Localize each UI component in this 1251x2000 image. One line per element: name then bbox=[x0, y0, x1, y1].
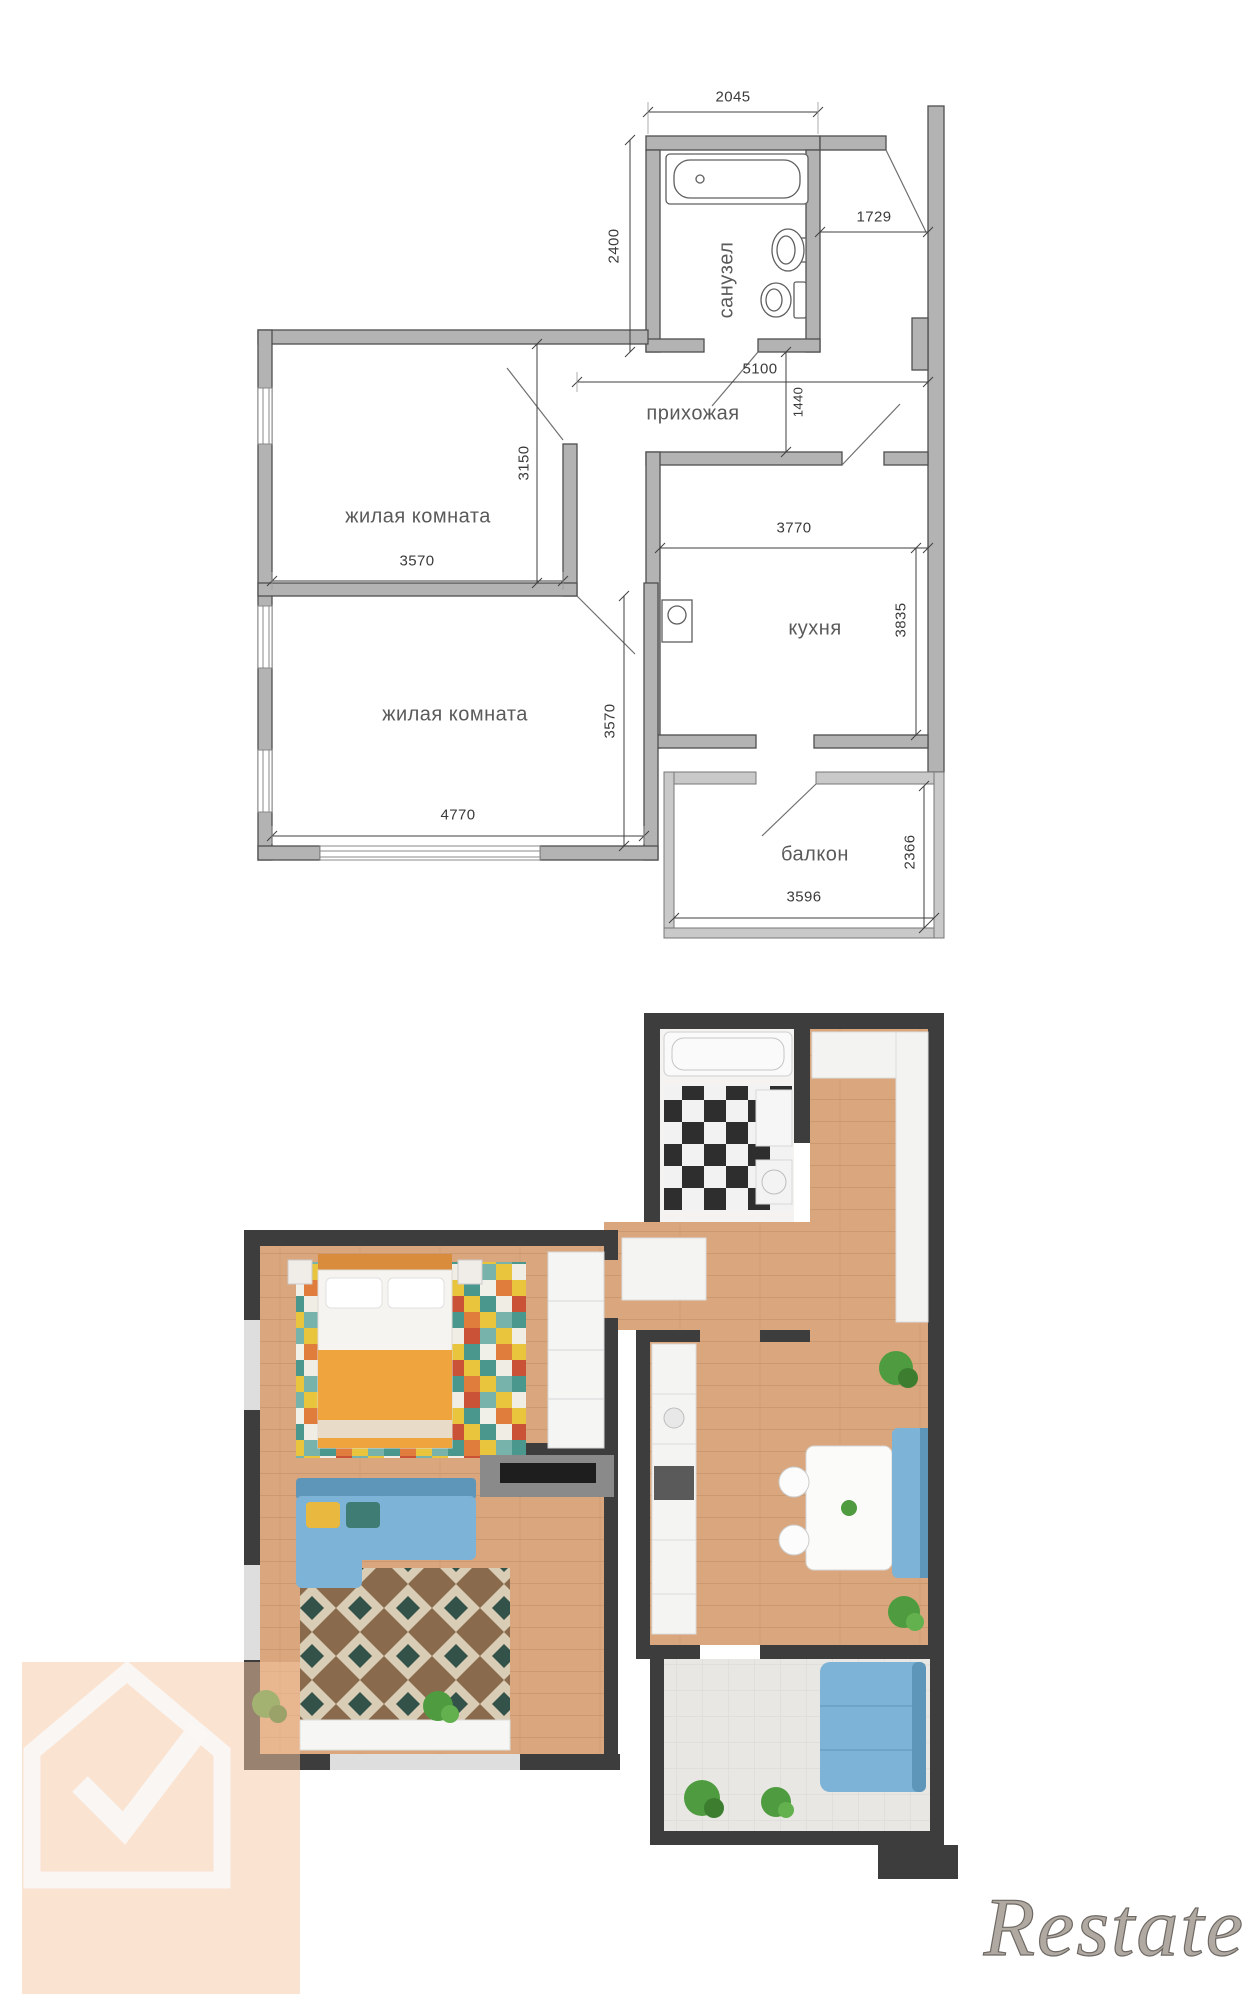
bathtub-fixture bbox=[666, 154, 808, 204]
tech-walls bbox=[258, 106, 944, 860]
dim-room1-height: 3150 bbox=[516, 446, 533, 481]
room-label-room2: жилая комната bbox=[382, 704, 528, 727]
balcony-sofa bbox=[820, 1662, 926, 1792]
room-label-bathroom: санузел bbox=[716, 242, 739, 319]
sink-fixture bbox=[772, 229, 806, 271]
toilet-fixture bbox=[761, 282, 806, 318]
media-console bbox=[300, 1720, 510, 1750]
tv-console bbox=[480, 1455, 614, 1497]
room-label-room1: жилая комната bbox=[345, 506, 491, 529]
kitchen-sink-fixture bbox=[662, 600, 692, 642]
room-label-hallway: прихожая bbox=[646, 403, 739, 426]
floorplan-page: санузел прихожая жилая комната жилая ком… bbox=[0, 0, 1251, 2000]
bed bbox=[318, 1254, 452, 1448]
chair bbox=[779, 1525, 809, 1555]
bench-sofa-back bbox=[920, 1428, 928, 1578]
tech-windows bbox=[258, 388, 540, 860]
dim-kitchen-width: 3770 bbox=[777, 520, 812, 537]
dim-balcony-width: 3596 bbox=[787, 889, 822, 906]
dim-bathroom-height: 2400 bbox=[606, 229, 623, 264]
wardrobe bbox=[548, 1252, 604, 1448]
dim-bathroom-width: 2045 bbox=[716, 89, 751, 106]
dim-entry-width: 1729 bbox=[857, 209, 892, 226]
dim-room2-height: 3570 bbox=[602, 704, 619, 739]
render-bathroom bbox=[664, 1032, 792, 1210]
watermark-brand: Restate bbox=[700, 1886, 1245, 1970]
hall-closet bbox=[622, 1238, 706, 1300]
render-plan bbox=[244, 1013, 958, 1879]
room-label-balcony: балкон bbox=[781, 844, 849, 867]
chair bbox=[779, 1467, 809, 1497]
table-plant bbox=[841, 1500, 857, 1516]
dim-kitchen-height: 3835 bbox=[893, 603, 910, 638]
tech-extension-lines bbox=[272, 102, 818, 844]
dim-room1-width: 3570 bbox=[400, 553, 435, 570]
room-label-kitchen: кухня bbox=[788, 618, 841, 641]
house-check-icon bbox=[22, 1662, 232, 1892]
dim-balcony-height: 2366 bbox=[902, 835, 919, 870]
dim-hall-height: 1440 bbox=[791, 387, 806, 418]
watermark-logo bbox=[22, 1662, 300, 1994]
dim-hall-width: 5100 bbox=[743, 361, 778, 378]
dim-room2-width: 4770 bbox=[441, 807, 476, 824]
render-kitchen bbox=[652, 1344, 696, 1634]
